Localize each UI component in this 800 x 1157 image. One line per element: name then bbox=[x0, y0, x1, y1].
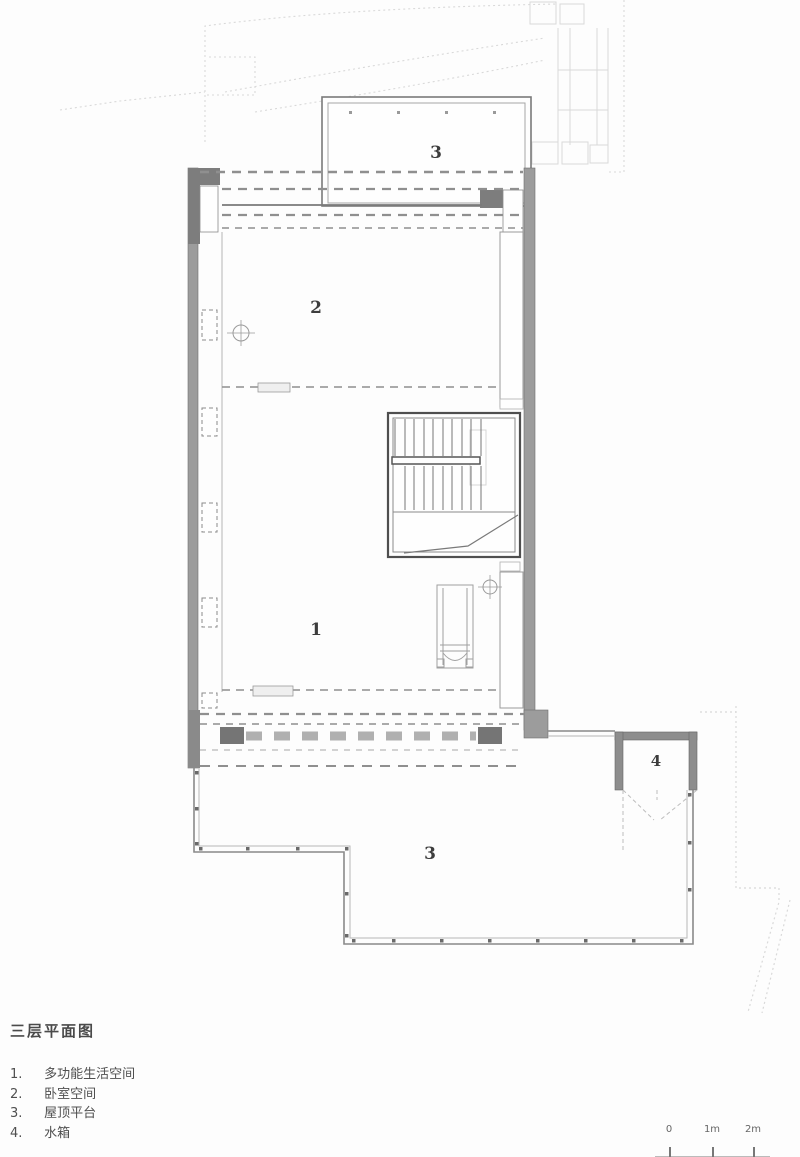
water-tank bbox=[548, 731, 697, 852]
room-label-roof-upper: 3 bbox=[430, 143, 442, 163]
legend-item-label: 多功能生活空间 bbox=[44, 1067, 135, 1082]
legend-item-label: 屋顶平台 bbox=[44, 1106, 96, 1121]
legend-item-number: 2. bbox=[10, 1085, 40, 1105]
scale-label-1m: 1m bbox=[704, 1124, 720, 1135]
room-label-living: 1 bbox=[310, 620, 322, 640]
divider-detail bbox=[253, 686, 293, 696]
legend-item-number: 3. bbox=[10, 1104, 40, 1124]
left-wall-columns bbox=[202, 310, 217, 708]
context-lines-bottomright bbox=[700, 706, 790, 1013]
scale-bar: 0 1m 2m bbox=[640, 1124, 790, 1157]
ladder-fixture bbox=[437, 585, 473, 668]
staircase bbox=[388, 413, 520, 557]
room-label-roof-lower: 3 bbox=[424, 844, 436, 864]
page-title: 三层平面图 bbox=[10, 1020, 135, 1041]
lower-terrace bbox=[194, 768, 693, 944]
floor-plan-drawing bbox=[0, 0, 800, 1157]
divider-detail bbox=[258, 383, 290, 392]
floor-plan-page: 3 2 1 3 4 三层平面图 1. 多功能生活空间 2. 卧室空间 3. 屋顶… bbox=[0, 0, 800, 1157]
legend-item-label: 卧室空间 bbox=[44, 1087, 96, 1102]
legend-item: 2. 卧室空间 bbox=[10, 1085, 135, 1105]
legend-item-number: 4. bbox=[10, 1124, 40, 1144]
scale-label-0: 0 bbox=[666, 1124, 672, 1135]
scale-tick bbox=[712, 1147, 714, 1157]
legend: 三层平面图 1. 多功能生活空间 2. 卧室空间 3. 屋顶平台 4. 水箱 bbox=[10, 1020, 135, 1143]
legend-item-label: 水箱 bbox=[44, 1126, 70, 1141]
room-label-bedroom: 2 bbox=[310, 298, 322, 318]
legend-item: 4. 水箱 bbox=[10, 1124, 135, 1144]
scale-tick bbox=[753, 1147, 755, 1157]
context-block-topright bbox=[530, 2, 608, 164]
legend-item: 3. 屋顶平台 bbox=[10, 1104, 135, 1124]
room-label-tank: 4 bbox=[651, 752, 661, 770]
legend-item-number: 1. bbox=[10, 1065, 40, 1085]
legend-item: 1. 多功能生活空间 bbox=[10, 1065, 135, 1085]
scale-label-2m: 2m bbox=[745, 1124, 761, 1135]
scale-tick bbox=[669, 1147, 671, 1157]
